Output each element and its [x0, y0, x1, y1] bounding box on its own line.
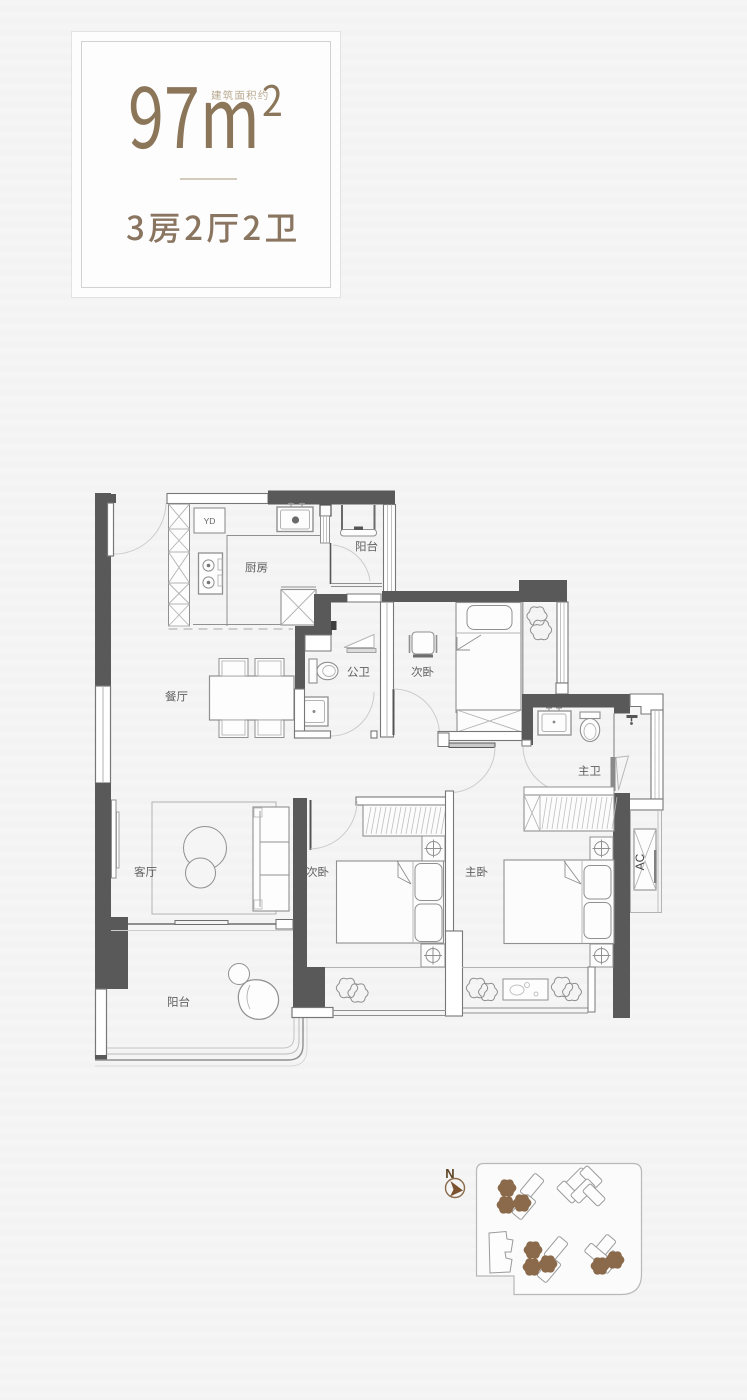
svg-text:YD: YD: [204, 516, 216, 526]
svg-text:AC: AC: [633, 853, 647, 870]
